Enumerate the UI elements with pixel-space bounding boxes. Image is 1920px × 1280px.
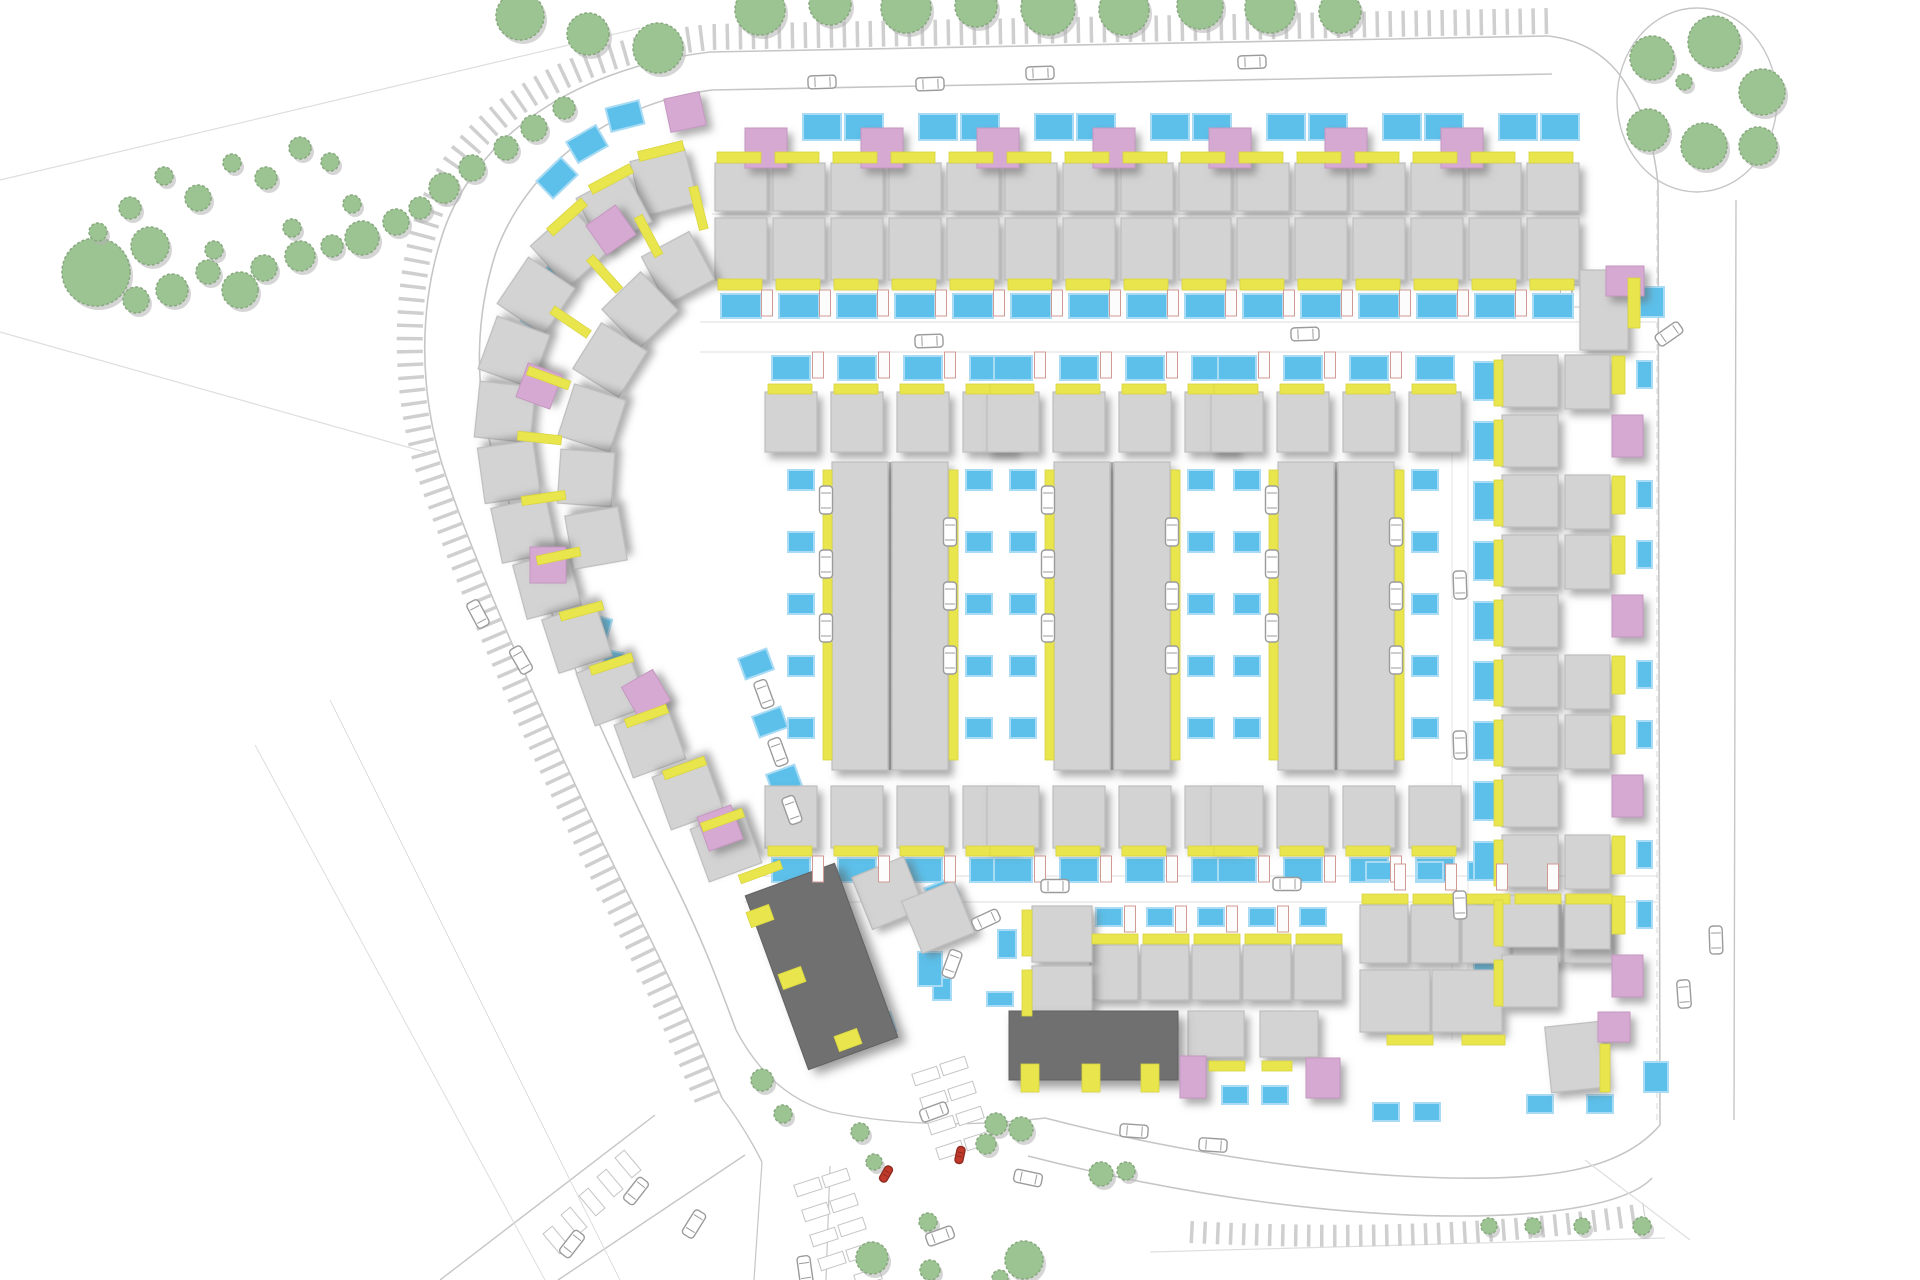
car-icon bbox=[1266, 614, 1279, 642]
parking-space bbox=[772, 356, 810, 380]
parking-space bbox=[1010, 718, 1036, 738]
garden-strip bbox=[1414, 279, 1458, 290]
garden-strip bbox=[1356, 279, 1400, 290]
parking-space bbox=[788, 470, 814, 490]
pink-unit bbox=[1612, 595, 1643, 637]
parking-space bbox=[788, 656, 814, 676]
tree-icon bbox=[196, 260, 220, 284]
parking-space bbox=[536, 158, 577, 199]
garden-strip bbox=[834, 384, 878, 394]
garden-strip bbox=[900, 384, 944, 394]
garden-strip bbox=[1066, 279, 1110, 290]
parking-space bbox=[966, 532, 992, 552]
parking-space bbox=[738, 649, 774, 680]
house bbox=[715, 218, 767, 280]
garage-marker bbox=[936, 290, 947, 316]
parking-space bbox=[1366, 862, 1392, 880]
house bbox=[1565, 355, 1610, 409]
parking-space bbox=[966, 594, 992, 614]
tree-icon bbox=[383, 209, 409, 235]
tree-icon bbox=[119, 197, 141, 219]
tree-icon bbox=[131, 227, 169, 265]
house bbox=[1502, 535, 1558, 587]
car-icon bbox=[820, 486, 833, 514]
road-line bbox=[558, 1155, 745, 1280]
garage-marker bbox=[1035, 352, 1046, 378]
parking-space bbox=[1010, 470, 1036, 490]
garden-strip bbox=[1494, 540, 1503, 586]
garden-strip bbox=[1239, 152, 1283, 163]
car-icon-body bbox=[466, 599, 491, 630]
tree-icon bbox=[285, 241, 315, 271]
car-icon bbox=[767, 737, 789, 768]
car-icon-body bbox=[1390, 582, 1403, 610]
house bbox=[1502, 355, 1558, 407]
garage-marker bbox=[813, 856, 824, 882]
car-icon-body bbox=[820, 550, 833, 578]
tree-icon bbox=[1525, 1218, 1541, 1234]
garage-marker bbox=[762, 290, 773, 316]
car-icon-body bbox=[944, 518, 957, 546]
parking-space bbox=[1249, 908, 1275, 926]
garden-strip bbox=[1007, 152, 1051, 163]
parking-space bbox=[721, 294, 761, 318]
tree-icon bbox=[155, 167, 173, 185]
car-icon bbox=[944, 518, 957, 546]
parking-space bbox=[918, 952, 942, 986]
road-line bbox=[1150, 1238, 1665, 1252]
garden-strip bbox=[1008, 279, 1052, 290]
garden-strip bbox=[776, 279, 820, 290]
parking-stall bbox=[810, 1227, 838, 1246]
tree-icon bbox=[343, 195, 361, 213]
car-icon-body bbox=[1266, 486, 1279, 514]
tree-icon bbox=[1117, 1162, 1135, 1180]
garden-strip bbox=[1612, 476, 1625, 514]
house bbox=[1343, 786, 1395, 848]
house bbox=[1032, 906, 1092, 962]
garden-strip bbox=[1022, 910, 1032, 956]
car-icon-body bbox=[1266, 614, 1279, 642]
car-icon bbox=[941, 949, 963, 980]
car-icon bbox=[1166, 518, 1179, 546]
car-icon-rear-window bbox=[1680, 1002, 1690, 1003]
tree-icon bbox=[992, 1270, 1008, 1280]
tree-icon bbox=[1089, 1162, 1113, 1186]
tree-icon bbox=[1009, 1117, 1033, 1141]
garden-strip bbox=[1122, 846, 1166, 856]
tree-icon bbox=[1688, 16, 1740, 68]
house bbox=[892, 462, 948, 770]
car-icon bbox=[1120, 1124, 1149, 1139]
parking-stall bbox=[948, 1081, 976, 1100]
pink-unit bbox=[664, 92, 706, 133]
house bbox=[765, 392, 817, 452]
house bbox=[1053, 786, 1105, 848]
parking-space bbox=[966, 718, 992, 738]
house bbox=[1502, 655, 1558, 707]
garden-strip bbox=[949, 470, 958, 760]
garden-strip bbox=[768, 846, 812, 856]
parking-space bbox=[1527, 1095, 1553, 1113]
parking-space bbox=[1188, 470, 1214, 490]
car-icon bbox=[820, 550, 833, 578]
garden-strip bbox=[1280, 846, 1324, 856]
garden-strip bbox=[586, 255, 622, 294]
parking-space bbox=[1414, 1103, 1440, 1121]
garden-strip bbox=[1143, 934, 1189, 944]
car-icon-body bbox=[1273, 878, 1301, 891]
house bbox=[1565, 655, 1610, 709]
tree-icon bbox=[567, 13, 609, 55]
car-icon-body bbox=[1166, 582, 1179, 610]
pink-unit bbox=[1598, 1012, 1630, 1042]
parking-space bbox=[994, 356, 1032, 380]
garage-marker bbox=[1167, 352, 1178, 378]
parking-space bbox=[1412, 594, 1438, 614]
house bbox=[831, 218, 883, 280]
parking-space bbox=[1417, 862, 1443, 880]
house bbox=[1237, 218, 1289, 280]
house bbox=[897, 392, 949, 452]
tree-icon bbox=[1633, 1217, 1651, 1235]
house bbox=[1527, 218, 1579, 280]
garden-strip bbox=[1412, 384, 1456, 394]
parking-space bbox=[838, 356, 876, 380]
tree-icon bbox=[494, 136, 518, 160]
garage-marker bbox=[1226, 290, 1237, 316]
house bbox=[1469, 218, 1521, 280]
house bbox=[1565, 835, 1610, 889]
garden-strip bbox=[1600, 1044, 1610, 1092]
parking-space bbox=[1060, 858, 1098, 882]
garden-strip bbox=[775, 152, 819, 163]
house bbox=[1063, 218, 1115, 280]
tree-icon bbox=[62, 238, 130, 306]
garden-strip bbox=[834, 846, 878, 856]
car-icon bbox=[1453, 571, 1467, 599]
garden-strip bbox=[1612, 836, 1625, 874]
parking-space bbox=[1637, 661, 1652, 688]
garden-strip bbox=[1472, 279, 1516, 290]
house bbox=[1565, 715, 1610, 769]
parking-space bbox=[1301, 294, 1341, 318]
house bbox=[1360, 970, 1430, 1032]
car-icon-windshield bbox=[1206, 1140, 1207, 1150]
house bbox=[1277, 786, 1329, 848]
car-icon-body bbox=[767, 737, 789, 768]
pink-unit bbox=[1612, 415, 1643, 457]
car-icon-body bbox=[1042, 486, 1055, 514]
garden-strip bbox=[1245, 934, 1291, 944]
garage-marker bbox=[1284, 290, 1295, 316]
garage-marker bbox=[878, 290, 889, 316]
car-icon-body bbox=[681, 1209, 707, 1240]
garden-strip bbox=[1412, 846, 1456, 856]
garden-strip bbox=[949, 152, 993, 163]
car-icon-body bbox=[1266, 550, 1279, 578]
garage-marker bbox=[1101, 352, 1112, 378]
garden-strip bbox=[1628, 278, 1640, 328]
parking-space bbox=[1234, 594, 1260, 614]
tree-icon bbox=[1627, 109, 1669, 151]
car-icon-rear-window bbox=[1221, 1141, 1222, 1151]
car-icon bbox=[1709, 926, 1723, 954]
garden-strip bbox=[1214, 384, 1258, 394]
garden-strip bbox=[1413, 152, 1457, 163]
house bbox=[1179, 218, 1231, 280]
parking-space bbox=[788, 594, 814, 614]
house bbox=[987, 786, 1039, 848]
garden-strip bbox=[1494, 600, 1503, 646]
parking-space bbox=[1587, 1095, 1613, 1113]
garden-strip bbox=[892, 279, 936, 290]
car-icon-body bbox=[1453, 571, 1467, 599]
garden-strip bbox=[1494, 900, 1503, 946]
site-plan-canvas bbox=[0, 0, 1920, 1280]
tree-icon bbox=[321, 153, 339, 171]
tree-icon bbox=[185, 185, 211, 211]
parking-space bbox=[1267, 114, 1305, 140]
house bbox=[1121, 218, 1173, 280]
parking-space bbox=[1533, 294, 1573, 318]
pink-unit bbox=[1612, 955, 1643, 997]
parking-space bbox=[1151, 114, 1189, 140]
pink-unit bbox=[1180, 1056, 1206, 1098]
house bbox=[773, 218, 825, 280]
car-icon bbox=[753, 679, 775, 710]
house bbox=[831, 786, 883, 848]
garden-strip bbox=[1296, 934, 1342, 944]
house bbox=[1005, 163, 1057, 211]
parking-space bbox=[1218, 858, 1256, 882]
tree-icon bbox=[1739, 69, 1785, 115]
parking-space bbox=[1234, 470, 1260, 490]
tree-icon bbox=[553, 97, 575, 119]
parking-stall bbox=[940, 1056, 968, 1075]
house bbox=[1527, 163, 1579, 211]
door-marker bbox=[1082, 1064, 1100, 1092]
road-line bbox=[0, 332, 425, 452]
car-icon-windshield bbox=[1679, 987, 1689, 988]
garage-marker bbox=[879, 352, 890, 378]
house bbox=[889, 163, 941, 211]
car-icon-body bbox=[1042, 550, 1055, 578]
house bbox=[1565, 475, 1610, 529]
house bbox=[1353, 163, 1405, 211]
parking-space bbox=[1350, 356, 1388, 380]
tree-icon bbox=[774, 1105, 792, 1123]
tree-icon bbox=[409, 197, 431, 219]
garden-strip bbox=[1413, 894, 1459, 904]
garage-marker bbox=[1101, 856, 1112, 882]
car-icon bbox=[916, 77, 944, 91]
house bbox=[1277, 392, 1329, 452]
garden-strip bbox=[550, 306, 592, 338]
tree-icon bbox=[156, 274, 188, 306]
parking-space bbox=[1373, 1103, 1399, 1121]
parking-space bbox=[1383, 114, 1421, 140]
garden-strip bbox=[1298, 279, 1342, 290]
tree-icon bbox=[1681, 123, 1727, 169]
garage-marker bbox=[1548, 864, 1559, 890]
car-icon-body bbox=[820, 614, 833, 642]
house bbox=[1502, 955, 1558, 1007]
house bbox=[947, 218, 999, 280]
garage-marker bbox=[1110, 290, 1121, 316]
garden-strip bbox=[1494, 480, 1503, 526]
parking-space bbox=[837, 294, 877, 318]
tree-icon bbox=[251, 255, 277, 281]
house bbox=[477, 440, 540, 503]
parking-space bbox=[1188, 532, 1214, 552]
car-icon bbox=[971, 908, 1002, 932]
parking-stall bbox=[802, 1202, 830, 1221]
parking-space bbox=[1412, 718, 1438, 738]
house bbox=[1295, 163, 1347, 211]
tree-icon bbox=[521, 115, 547, 141]
garage-marker bbox=[879, 856, 890, 882]
parking-space bbox=[1541, 114, 1579, 140]
car-icon-body bbox=[1677, 980, 1692, 1009]
car-icon-body bbox=[1390, 518, 1403, 546]
parking-space bbox=[1499, 114, 1537, 140]
car-icon bbox=[1291, 327, 1319, 341]
parking-space bbox=[1198, 908, 1224, 926]
car-icon bbox=[1041, 880, 1069, 893]
house bbox=[1353, 218, 1405, 280]
tree-icon bbox=[1574, 1218, 1590, 1234]
house bbox=[1502, 415, 1558, 467]
garden-strip bbox=[833, 152, 877, 163]
parking-space bbox=[1234, 532, 1260, 552]
parking-space bbox=[1412, 532, 1438, 552]
parking-space bbox=[1262, 1086, 1288, 1104]
tree-icon bbox=[1630, 36, 1674, 80]
house bbox=[1343, 392, 1395, 452]
parking-stall bbox=[838, 1217, 866, 1236]
car-icon bbox=[820, 614, 833, 642]
tree-icon bbox=[866, 1154, 882, 1170]
parking-stall bbox=[794, 1177, 822, 1196]
car-icon-windshield bbox=[1127, 1126, 1128, 1136]
garden-strip bbox=[1612, 656, 1625, 694]
tree-icon bbox=[205, 241, 223, 259]
car-icon bbox=[466, 599, 491, 630]
car-icon bbox=[1453, 891, 1467, 919]
garden-strip bbox=[1566, 894, 1612, 904]
parking-space bbox=[1416, 356, 1454, 380]
car-icon-body bbox=[1166, 518, 1179, 546]
house bbox=[1411, 218, 1463, 280]
garage-marker bbox=[1227, 906, 1238, 932]
garden-strip bbox=[1297, 152, 1341, 163]
garden-strip bbox=[1612, 356, 1625, 394]
car-icon bbox=[1166, 582, 1179, 610]
car-icon-body bbox=[1199, 1138, 1228, 1153]
tree-icon bbox=[920, 1260, 940, 1280]
car-icon-rear-window bbox=[1142, 1127, 1143, 1137]
parking-space bbox=[904, 356, 942, 380]
parking-space bbox=[1096, 908, 1122, 926]
house bbox=[1188, 1011, 1244, 1057]
car-icon-body bbox=[622, 1176, 649, 1206]
car-icon bbox=[944, 646, 957, 674]
garden-strip bbox=[1355, 152, 1399, 163]
car-icon bbox=[681, 1209, 707, 1240]
car-icon bbox=[1390, 582, 1403, 610]
garden-strip bbox=[1612, 896, 1625, 934]
garden-strip bbox=[1262, 1061, 1292, 1071]
tree-icon bbox=[123, 287, 149, 313]
parking-space bbox=[966, 470, 992, 490]
parking-space bbox=[895, 294, 935, 318]
house bbox=[1502, 595, 1558, 647]
road-line bbox=[255, 745, 545, 1280]
tree-icon bbox=[751, 1069, 773, 1091]
house bbox=[1432, 970, 1502, 1032]
house bbox=[1338, 462, 1394, 770]
car-icon bbox=[1390, 518, 1403, 546]
garden-strip bbox=[1494, 360, 1503, 406]
parking-space bbox=[1010, 594, 1036, 614]
garden-strip bbox=[718, 279, 762, 290]
house bbox=[832, 462, 888, 770]
garden-strip bbox=[1214, 846, 1258, 856]
car-icon-body bbox=[820, 486, 833, 514]
garden-strip bbox=[1346, 846, 1390, 856]
parking-space bbox=[953, 294, 993, 318]
car-icon bbox=[1677, 980, 1692, 1009]
parking-space bbox=[1188, 656, 1214, 676]
car-icon-body bbox=[1453, 891, 1467, 919]
parking-stall bbox=[912, 1066, 940, 1085]
car-icon-body bbox=[753, 679, 775, 710]
garden-strip bbox=[950, 279, 994, 290]
garage-marker bbox=[1259, 856, 1270, 882]
house bbox=[1469, 163, 1521, 211]
garden-strip bbox=[768, 384, 812, 394]
car-icon-body bbox=[971, 908, 1002, 932]
car-icon bbox=[622, 1176, 649, 1206]
house bbox=[1294, 945, 1342, 1000]
parking-space bbox=[1284, 356, 1322, 380]
garden-strip bbox=[1022, 970, 1032, 1016]
parking-space bbox=[1126, 858, 1164, 882]
car-icon bbox=[1273, 878, 1301, 891]
parking-space bbox=[1637, 541, 1652, 568]
car-icon-body bbox=[944, 646, 957, 674]
car-icon bbox=[915, 334, 943, 348]
house bbox=[1005, 218, 1057, 280]
parking-space bbox=[987, 992, 1013, 1006]
garden-strip bbox=[717, 152, 761, 163]
parking-space bbox=[803, 114, 841, 140]
car-icon bbox=[1026, 66, 1054, 80]
house bbox=[1409, 786, 1461, 848]
parking-space bbox=[1359, 294, 1399, 318]
car-icon-body bbox=[808, 75, 836, 89]
house bbox=[1502, 715, 1558, 767]
car-icon-body bbox=[1120, 1124, 1149, 1139]
house bbox=[1295, 218, 1347, 280]
garden-strip bbox=[1471, 152, 1515, 163]
tree-icon bbox=[856, 1242, 888, 1274]
tree-icon bbox=[985, 1113, 1007, 1135]
house bbox=[1114, 462, 1170, 770]
parking-space bbox=[1637, 721, 1652, 748]
parking-space bbox=[1475, 294, 1515, 318]
